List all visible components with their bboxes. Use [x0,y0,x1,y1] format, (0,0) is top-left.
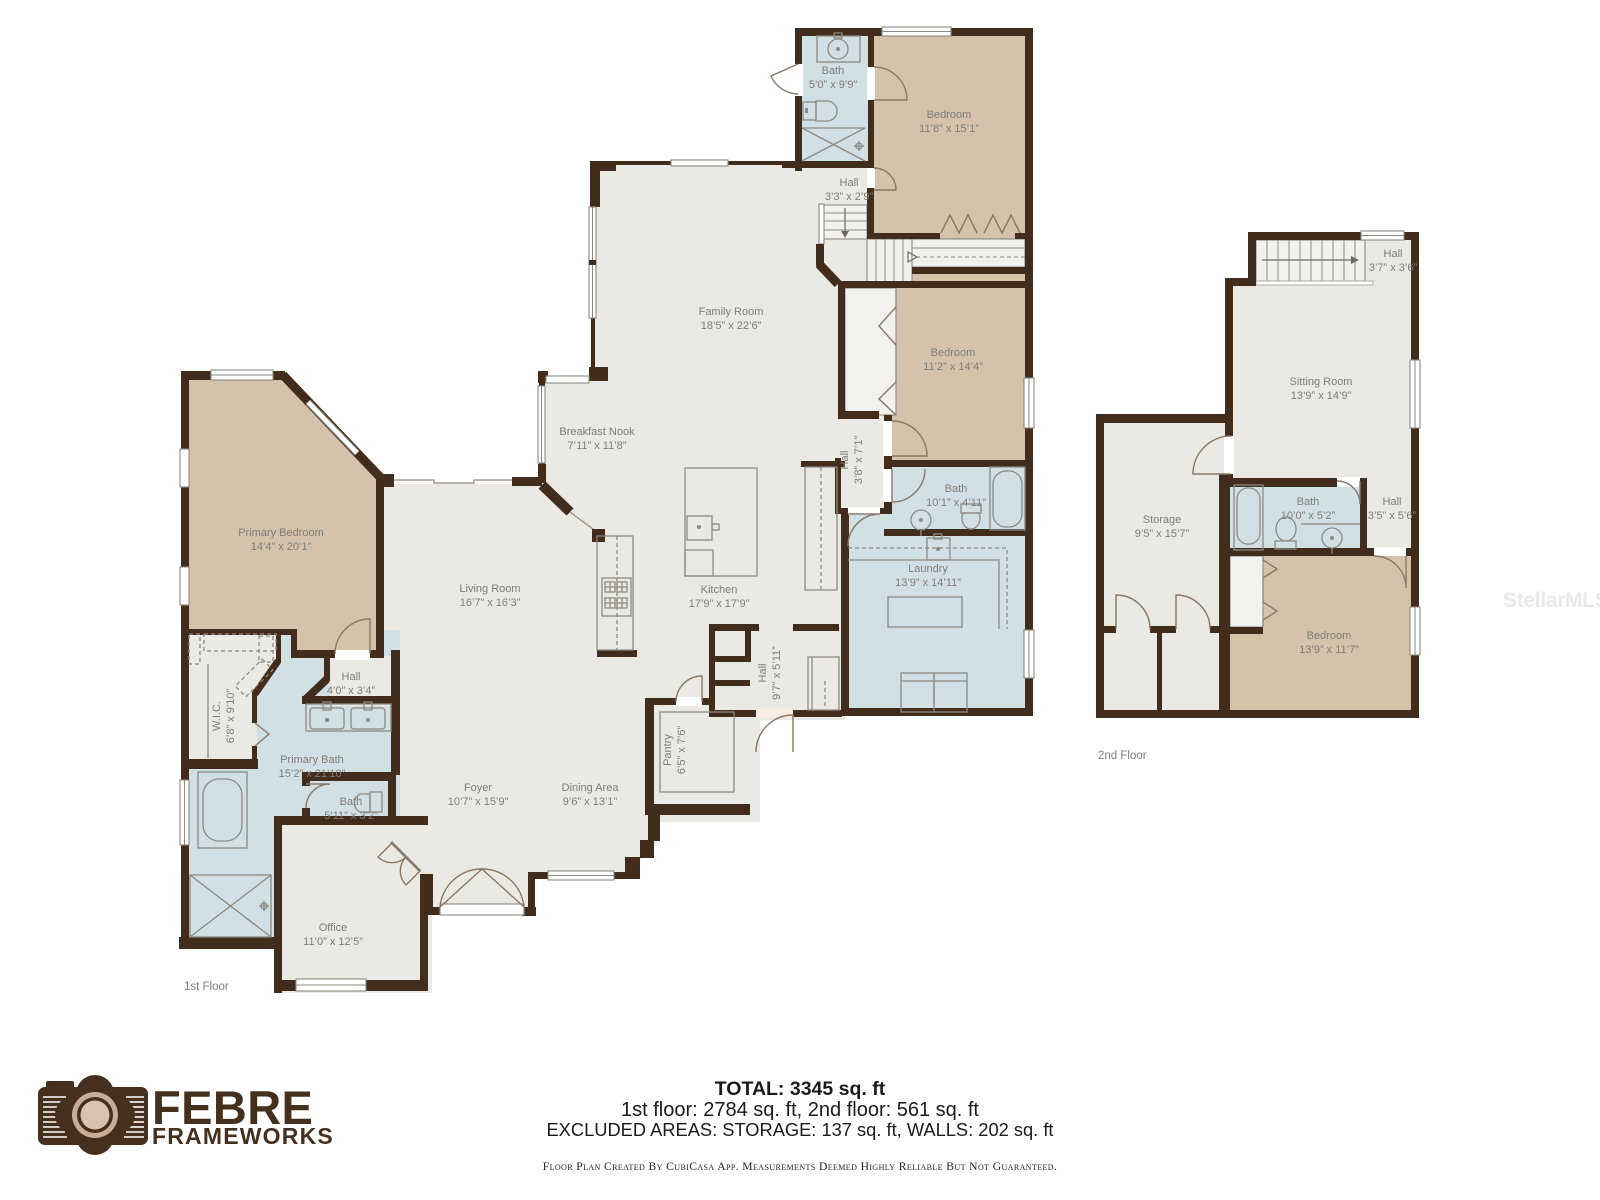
svg-text:1st floor: 2784 sq. ft, 2nd fl: 1st floor: 2784 sq. ft, 2nd floor: 561 s… [621,1099,979,1121]
svg-text:TOTAL: 3345 sq. ft: TOTAL: 3345 sq. ft [715,1078,886,1100]
svg-text:FRAMEWORKS: FRAMEWORKS [152,1123,334,1149]
svg-text:EXCLUDED AREAS: STORAGE: 137 s: EXCLUDED AREAS: STORAGE: 137 sq. ft, WAL… [546,1119,1053,1140]
svg-text:Floor Plan Created By CubiCasa: Floor Plan Created By CubiCasa App. Meas… [543,1160,1058,1173]
